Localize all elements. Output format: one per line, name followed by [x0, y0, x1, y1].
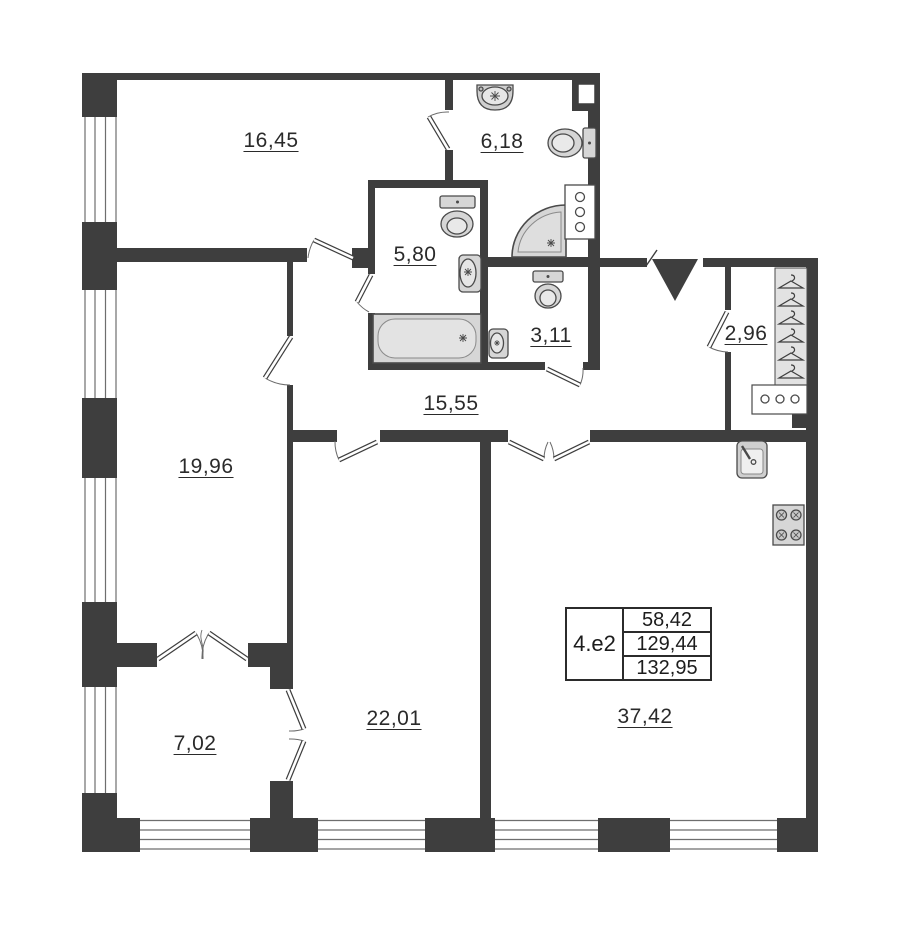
- wall: [445, 150, 453, 188]
- toilet-icon: [440, 196, 475, 237]
- wall-pier: [82, 602, 117, 687]
- unit-areas-column: 58,42 129,44 132,95: [622, 607, 712, 681]
- top-wall: [83, 73, 600, 80]
- room-area-label: 6,18: [481, 130, 524, 154]
- wall: [270, 643, 293, 689]
- room-area-label: 5,80: [394, 243, 437, 267]
- room-area-label: 22,01: [366, 707, 421, 731]
- room-area-label: 15,55: [423, 392, 478, 416]
- wall: [583, 362, 600, 370]
- wall: [725, 267, 731, 310]
- window-icon: [85, 117, 116, 222]
- wall-pier: [598, 818, 670, 852]
- entry-wall-left: [595, 258, 647, 267]
- wall-pier: [82, 398, 117, 478]
- wall: [368, 180, 488, 188]
- room-area-label: 19,96: [178, 455, 233, 479]
- wardrobe-rail: [775, 268, 807, 385]
- cabinet-icon: [565, 185, 595, 239]
- wall: [117, 248, 307, 262]
- room-area-label: 37,42: [617, 705, 672, 729]
- window-icon: [140, 821, 250, 850]
- wall: [287, 262, 293, 336]
- wall: [270, 781, 293, 818]
- stove-icon: [773, 505, 804, 545]
- wall-niche: [578, 84, 595, 104]
- wall: [792, 413, 806, 428]
- floor-plan: 16,45 6,18 5,80 3,11 2,96 15,55 19,96 7,…: [0, 0, 900, 929]
- wall-pier: [82, 818, 140, 852]
- window-icon: [85, 478, 116, 602]
- room-area-label: 2,96: [725, 322, 768, 346]
- sink-icon: [489, 329, 508, 358]
- toilet-icon: [533, 271, 563, 308]
- room-area-label: 16,45: [243, 129, 298, 153]
- unit-total-area: 132,95: [622, 655, 712, 681]
- floor-plan-drawing: [0, 0, 900, 929]
- window-icon: [495, 821, 598, 850]
- room-area-label: 3,11: [530, 324, 571, 348]
- wall: [590, 430, 813, 442]
- window-icon: [85, 687, 116, 793]
- room-area-label: 7,02: [174, 732, 217, 756]
- toilet-icon: [548, 128, 596, 158]
- drawer-unit-icon: [752, 385, 807, 414]
- wall: [287, 385, 293, 667]
- wall: [725, 352, 731, 442]
- bathtub-icon: [373, 314, 481, 363]
- unit-living-area: 58,42: [622, 607, 712, 633]
- entry-wall-right: [703, 258, 813, 267]
- shower-icon: [512, 205, 566, 257]
- wall: [117, 643, 157, 667]
- unit-info-table: 4.e2 58,42 129,44 132,95: [565, 607, 712, 681]
- entrance-arrow-icon: [646, 250, 698, 301]
- sink-icon: [459, 255, 481, 292]
- window-icon: [670, 821, 777, 850]
- unit-area: 129,44: [622, 631, 712, 657]
- right-wall: [806, 258, 818, 852]
- window-icon: [318, 821, 425, 850]
- kitchen-sink-icon: [737, 441, 767, 478]
- wall: [445, 73, 453, 110]
- wall-pier: [82, 73, 117, 117]
- wall: [287, 430, 337, 442]
- wall-pier: [250, 818, 318, 852]
- window-icon: [85, 290, 116, 398]
- wall: [488, 257, 600, 267]
- sink-icon: [477, 85, 513, 110]
- unit-type-cell: 4.e2: [565, 607, 624, 681]
- wall-pier: [82, 222, 117, 290]
- wall: [480, 430, 491, 852]
- wall: [368, 188, 375, 274]
